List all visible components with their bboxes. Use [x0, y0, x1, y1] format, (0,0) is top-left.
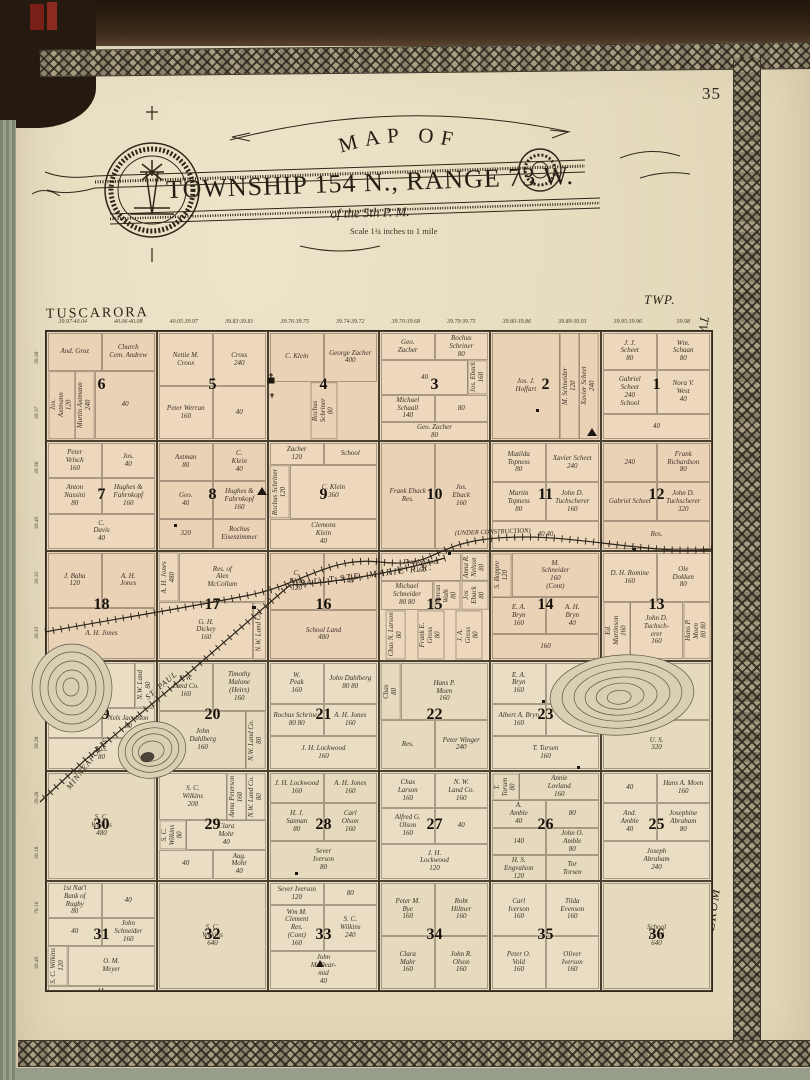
section-tile-20: N.W. Land Co. 160Timothy Malone (Heirs) …: [157, 661, 268, 771]
section-tile-11: Matilda Topness 80Xavier Scheet 240Marti…: [490, 441, 601, 551]
section-tile-1: J. J. Scheet 80Wm. Schaan 80Gabriel Sche…: [601, 331, 712, 441]
parcel-owner-label: S. C. Wilkins 640: [159, 883, 266, 989]
map-scale-note: Scale 1¾ inches to 1 mile: [350, 226, 437, 236]
section-tile-22: Chas 80Hans P. Moen 160Res.Peter Winger …: [379, 661, 490, 771]
survey-acreage-value: 39.79·39.75: [434, 319, 490, 325]
section-tile-8: Axtman 80C. Klein 40Geo. 40Hughes & Fahr…: [157, 441, 268, 551]
parcel-owner-label: Marcus Walk 80: [433, 581, 460, 610]
parcel-owner-label: John McDear- mid 40: [270, 951, 377, 989]
parcel-owner-label: C. Klein 360: [290, 465, 377, 518]
parcel-owner-label: John Dahlberg 80 80: [324, 663, 378, 704]
survey-acreage-value: 39.26: [34, 770, 40, 825]
decorative-border-bottom: [18, 1040, 810, 1067]
parcel-owner-label: Tilda Evenson 160: [546, 883, 600, 936]
parcel-owner-label: N.W. Land 80: [135, 663, 155, 708]
parcel-owner-label: Albert A. Bryn 160: [492, 704, 546, 737]
survey-acreage-value: 39.37: [34, 385, 40, 440]
parcel-owner-label: Clara Mahr 160: [381, 936, 435, 989]
parcel-owner-label: 160: [492, 634, 599, 659]
parcel-owner-label: J. H. Lockwood 120: [381, 844, 488, 879]
survey-acreage-value: 40.05·39.97: [156, 319, 212, 325]
book-cover-accent: [47, 2, 57, 30]
section-tile-25: 40Hans A. Moen 160And. Amble 40Josephine…: [601, 771, 712, 881]
section-tile-33: Sever Iverson 12080Wm M. Clement Res. (C…: [268, 881, 379, 991]
section-tile-36: School Land 64036: [601, 881, 712, 991]
parcel-owner-label: John R. Olson 160: [435, 936, 489, 989]
parcel-owner-label: S. C. Wilkins 200: [159, 773, 227, 820]
parcel-owner-label: John D. Tuchscherer 320: [657, 482, 711, 521]
parcel-owner-label: 40: [213, 386, 267, 439]
parcel-owner-label: S. C. Wilkins 120: [48, 946, 68, 986]
survey-acreage-value: 39.83·39.81: [212, 319, 268, 325]
parcel-owner-label: Ed. Martinson 160: [603, 602, 630, 659]
parcel-owner-label: A. H. Jones 160: [324, 773, 378, 803]
parcel-owner-label: Alfred G. Olson 160: [381, 808, 435, 843]
parcel-owner-label: Peter Winger 240: [435, 720, 489, 769]
twp-label-top: TWP.: [644, 292, 676, 308]
parcel-owner-label: Anna R. Nelson 80: [461, 553, 488, 581]
parcel-owner-label: 40: [95, 371, 155, 439]
parcel-owner-label: Sever Iverson 120: [270, 883, 324, 905]
section-tile-26: T. Torsen 80Annie Lovland 160A. Amble 40…: [490, 771, 601, 881]
parcel-owner-label: Jos. J. Hoffart: [492, 333, 560, 439]
parcel-owner-label: E. A. Bryn 160: [492, 663, 546, 704]
parcel-owner-label: P. H. Romine: [657, 663, 711, 720]
parcel-owner-label: 40: [324, 553, 378, 610]
parcel-owner-label: C. Davis 40: [48, 514, 155, 549]
section-tile-6: And. GrozChurch Cem. AndrewJos. Axtmann …: [46, 331, 157, 441]
page-number: 35: [702, 84, 721, 104]
section-tile-13: D. H. Romine 160Ole Dokken 80Ed. Martins…: [601, 551, 712, 661]
survey-acreage-value: 39.33: [34, 605, 40, 660]
parcel-owner-label: Michael Schaall 140: [381, 395, 435, 422]
parcel-owner-label: Peter Werran 160: [159, 386, 213, 439]
parcel-owner-label: Xavier Scheet 240: [579, 333, 599, 439]
parcel-owner-label: 40: [603, 773, 657, 803]
parcel-owner-label: School Land 480: [270, 610, 377, 659]
survey-acreage-value: 39.97·40.04: [45, 319, 101, 325]
parcel-owner-label: Aug. Mohr 40: [213, 850, 267, 879]
parcel-owner-label: M. Schneider 160 (Cont): [512, 553, 599, 597]
section-tile-18: J. Baba 120A. H. JonesA. H. Jones18: [46, 551, 157, 661]
parcel-owner-label: Anna Peterson 160: [227, 773, 247, 820]
parcel-owner-label: A. H. Jones: [48, 708, 102, 739]
parcel-owner-label: 140: [492, 828, 546, 855]
parcel-owner-label: A. H. Jones 480: [159, 553, 179, 602]
parcel-owner-label: School Land 640: [603, 883, 710, 989]
parcel-owner-label: Peter M. Bye 160: [381, 883, 435, 936]
parcel-owner-label: O. M. Meyer: [68, 946, 155, 986]
survey-acreage-value: 39.95·39.96: [600, 319, 656, 325]
page-stack-edge: [0, 120, 16, 1080]
parcel-owner-label: Martin Topness 80: [492, 482, 546, 521]
parcel-owner-label: 40: [603, 414, 710, 439]
parcel-owner-label: Clara Mohr 40: [186, 820, 266, 849]
parcel-owner-label: Nels Jacobson 80: [102, 708, 156, 739]
parcel-owner-label: Chas 80: [381, 663, 401, 720]
survey-acreage-value: 76.16: [34, 880, 40, 935]
parcel-owner-label: John D. Tuchsch- erer 160: [630, 602, 682, 659]
section-tile-27: Chas Larson 160N. W. Land Co. 160Alfred …: [379, 771, 490, 881]
parcel-owner-label: S. C. Wilkins 480: [48, 773, 155, 879]
section-tile-14: S. Boppre 120M. Schneider 160 (Cont)E. A…: [490, 551, 601, 661]
parcel-owner-label: And. Amble 40: [603, 803, 657, 841]
parcel-owner-label: Sever Iverson 80: [270, 841, 377, 879]
survey-acreage-value: 39.40: [34, 495, 40, 550]
parcel-owner-label: A. H. Jones 160: [324, 704, 378, 737]
section-tile-19: U.S. 80N.W. Land 80A. H. JonesNels Jacob…: [46, 661, 157, 771]
parcel-owner-label: Chas Larson 160: [381, 773, 435, 808]
survey-acreage-row: 39.97·40.0440.06·40.0840.05·39.9739.83·3…: [45, 319, 711, 325]
parcel-owner-label: Res. of Alex McCollum: [179, 553, 266, 602]
section-tile-9: Zacher 120SchoolRochus Schriner 120C. Kl…: [268, 441, 379, 551]
parcel-owner-label: U. S. 320: [603, 720, 710, 769]
parcel-owner-label: H. J. Sannan 80: [270, 803, 324, 841]
section-tile-29: S. C. Wilkins 200Anna Peterson 160N.W. L…: [157, 771, 268, 881]
section-tile-17: A. H. Jones 480Res. of Alex McCollumG. H…: [157, 551, 268, 661]
parcel-owner-label: Frank Eback Res.: [381, 443, 435, 549]
parcel-owner-label: Geo. Zacher 80: [381, 422, 488, 441]
parcel-owner-label: M. A. Moen 160: [603, 663, 657, 720]
parcel-owner-label: Res.: [381, 720, 435, 769]
parcel-owner-label: Wm M. Clement Res. (Cont) 160: [270, 905, 324, 951]
parcel-owner-label: Anton Nassini 80: [48, 478, 102, 513]
section-tile-7: Peter Velsch 160Jos. 40Anton Nassini 80H…: [46, 441, 157, 551]
section-tile-32: S. C. Wilkins 64032: [157, 881, 268, 991]
township-section-grid: And. GrozChurch Cem. AndrewJos. Axtmann …: [45, 330, 713, 992]
parcel-owner-label: Josephine Abraham 80: [657, 803, 711, 841]
parcel-owner-label: 40: [102, 883, 156, 918]
survey-acreage-value: 39.35: [34, 550, 40, 605]
section-tile-30: S. C. Wilkins 48030: [46, 771, 157, 881]
parcel-owner-label: N.W. Land Co. 160: [159, 663, 213, 711]
parcel-owner-label: John Schneider 160: [102, 918, 156, 945]
survey-acreage-value: 39.18: [34, 825, 40, 880]
parcel-owner-label: 240: [603, 443, 657, 482]
section-tile-4: C. KleinGeorge Zacher 400Rochus Schriner…: [268, 331, 379, 441]
parcel-owner-label: Axtman 80: [159, 443, 213, 481]
section-tile-3: Geo. ZacherRochus Schriner 8040Jos. Ebac…: [379, 331, 490, 441]
parcel-owner-label: Peter O. Vold 160: [492, 936, 546, 989]
parcel-owner-label: N.W. Land Co. 80: [246, 711, 266, 769]
parcel-owner-label: Frank E. Gross 80: [417, 610, 444, 659]
survey-acreage-value: 39.80·39.86: [489, 319, 545, 325]
parcel-owner-label: Res.: [546, 704, 600, 737]
parcel-owner-label: Geo. Zacher: [381, 333, 435, 360]
section-tile-23: E. A. Bryn 160Res.Albert A. Bryn 160Res.…: [490, 661, 601, 771]
parcel-owner-label: Jos. 40: [102, 443, 156, 478]
parcel-owner-label: U.S. 80: [48, 663, 135, 708]
survey-acreage-value: 39.89·39.93: [545, 319, 601, 325]
survey-acreage-value: 39.40: [34, 935, 40, 990]
section-tile-31: 1st Nat'l Bank of Rugby 804040John Schne…: [46, 881, 157, 991]
parcel-owner-label: T. Torsen 80: [492, 773, 519, 800]
parcel-owner-label: George Zacher 400: [324, 333, 378, 382]
parcel-owner-label: Hans A. Moen 160: [657, 773, 711, 803]
book-cover-accent: [30, 4, 44, 30]
parcel-owner-label: Zacher 120: [270, 443, 324, 465]
parcel-owner-label: Nettie M. Croox: [159, 333, 213, 386]
section-tile-35: Carl Iverson 160Tilda Evenson 160Peter O…: [490, 881, 601, 991]
parcel-owner-label: Geo. 40: [159, 481, 213, 519]
decorative-border-right: [733, 58, 761, 1042]
parcel-owner-label: Rochus Eisenzimmer: [213, 519, 267, 549]
parcel-owner-label: A. Amble 40: [492, 800, 546, 827]
survey-acreage-value: 39.76·39.75: [267, 319, 323, 325]
parcel-owner-label: Rochus Schriner 80: [310, 382, 337, 439]
parcel-owner-label: N.W. Land Co.: [253, 602, 266, 659]
section-tile-12: 240Frank Richardson 80Gabriel ScheetJohn…: [601, 441, 712, 551]
section-tile-2: Jos. J. HoffartM. Schneider 120Xavier Sc…: [490, 331, 601, 441]
section-tile-10: Frank Eback Res.Jos. Eback 16010: [379, 441, 490, 551]
parcel-owner-label: Jos. Eback 160: [435, 443, 489, 549]
parcel-owner-label: 40: [381, 360, 468, 394]
atlas-photo-scene: 35: [0, 0, 810, 1080]
parcel-owner-label: Gabriel Scheet: [603, 482, 657, 521]
parcel-owner-label: 80: [546, 800, 600, 827]
survey-acreage-value: 39.36: [34, 440, 40, 495]
parcel-owner-label: Jos. Axtmann 120: [48, 371, 75, 439]
parcel-owner-label: S. C. Wilkins 240: [324, 905, 378, 951]
section-tile-15: Frank Gross 160Anna R. Nelson 80Michael …: [379, 551, 490, 661]
parcel-owner-label: J. J. Scheet 80: [603, 333, 657, 370]
section-tile-28: J. H. Lockwood 160A. H. Jones 160H. J. S…: [268, 771, 379, 881]
parcel-owner-label: John D. Tuchscherer 160: [546, 482, 600, 521]
parcel-owner-label: Rochus Schriner 80: [435, 333, 489, 360]
parcel-owner-label: 80: [435, 395, 489, 422]
parcel-owner-label: Res.: [546, 663, 600, 704]
parcel-owner-label: Ole Dokken 80: [657, 553, 711, 602]
book-edge-top: [0, 0, 810, 46]
survey-acreage-value: 39.38: [34, 330, 40, 385]
parcel-owner-label: Clemons Klein 40: [270, 519, 377, 549]
parcel-owner-label: J. Baba 120: [48, 553, 102, 608]
survey-acreage-value: 39.70·39.68: [378, 319, 434, 325]
parcel-owner-label: J. H. Lockwood 160: [270, 736, 377, 769]
parcel-owner-label: Timothy Malone (Heirs) 160: [213, 663, 267, 711]
parcel-owner-label: Oliver Iverson 160: [546, 936, 600, 989]
parcel-owner-label: Rochus Schriner 80 80: [270, 704, 324, 737]
parcel-owner-label: 80: [324, 883, 378, 905]
parcel-owner-label: Hans P. Moen 160: [401, 663, 488, 720]
parcel-owner-label: U.S. 80: [48, 738, 155, 769]
parcel-owner-label: Hughes & Fahrnkopf 160: [213, 481, 267, 519]
parcel-owner-label: G. H. Dickey 160: [159, 602, 253, 659]
parcel-owner-label: John Dahlberg 160: [159, 711, 246, 769]
parcel-owner-label: N.W. Land Co. 80: [246, 773, 266, 820]
parcel-owner-label: E. A. Bryn 160: [492, 597, 546, 634]
parcel-owner-label: Chas N. Larson 80: [386, 610, 406, 659]
parcel-owner-label: J. A. Gross 80: [455, 610, 482, 659]
parcel-owner-label: Joseph Abraham 240: [603, 841, 710, 879]
parcel-owner-label: Matilda Topness 80: [492, 443, 546, 482]
section-tile-21: W. Peak 160John Dahlberg 80 80Rochus Sch…: [268, 661, 379, 771]
parcel-owner-label: Carl Iverson 160: [492, 883, 546, 936]
parcel-owner-label: S. Boppre 120: [492, 553, 512, 597]
survey-acreage-value: 39.28: [34, 715, 40, 770]
parcel-owner-label: M. Schneider 120: [560, 333, 580, 439]
survey-acreage-value: 39.74·39.72: [323, 319, 379, 325]
parcel-owner-label: 40 40: [492, 521, 599, 549]
parcel-owner-label: C. Klein: [270, 333, 324, 382]
parcel-owner-label: M. Goetz 40: [48, 986, 155, 991]
survey-acreage-value: 39.31: [34, 660, 40, 715]
section-tile-24: M. A. Moen 160P. H. RomineU. S. 32024: [601, 661, 712, 771]
parcel-owner-label: Tor Torsen: [546, 855, 600, 881]
parcel-owner-label: Nora V. West 40: [657, 370, 711, 414]
parcel-owner-label: Res.: [603, 521, 710, 549]
section-tile-5: Nettie M. CrooxCross 240Peter Werran 160…: [157, 331, 268, 441]
section-tile-34: Peter M. Bye 160Robt Hiltner 160Clara Ma…: [379, 881, 490, 991]
section-tile-16: C. Klein 12040School Land 48016: [268, 551, 379, 661]
parcel-owner-label: Hans P. Moen 80 80: [683, 602, 710, 659]
parcel-owner-label: A. H. Jones: [102, 553, 156, 608]
parcel-owner-label: C. Klein 120: [270, 553, 324, 610]
parcel-owner-label: Jos Eback 80: [461, 581, 488, 610]
parcel-owner-label: 40: [159, 850, 213, 879]
parcel-owner-label: Jos. Eback 160: [468, 360, 488, 394]
parcel-owner-label: 320: [159, 519, 213, 549]
parcel-owner-label: Cross 240: [213, 333, 267, 386]
parcel-owner-label: Robt Hiltner 160: [435, 883, 489, 936]
survey-acreage-column: 39.3839.3739.3639.4039.3539.3339.3139.28…: [34, 330, 40, 990]
parcel-owner-label: Wm. Schaan 80: [657, 333, 711, 370]
parcel-owner-label: N. W. Land Co. 160: [435, 773, 489, 808]
parcel-owner-label: Carl Olson 160: [324, 803, 378, 841]
parcel-owner-label: Frank Richardson 80: [657, 443, 711, 482]
parcel-owner-label: W. Peak 160: [270, 663, 324, 704]
parcel-owner-label: Michael Schneider 80 80: [381, 581, 433, 610]
parcel-owner-label: Rochus Schriner 120: [270, 465, 290, 518]
parcel-owner-label: A. H. Bryn 40: [546, 597, 600, 634]
parcel-owner-label: School: [324, 443, 378, 465]
parcel-owner-label: Hughes & Fahrnkopf 160: [102, 478, 156, 513]
parcel-owner-label: Church Cem. Andrew: [102, 333, 156, 371]
parcel-owner-label: A. H. Jones: [48, 608, 155, 659]
parcel-owner-label: Frank Gross 160: [381, 553, 461, 581]
parcel-owner-label: Xavier Scheet 240: [546, 443, 600, 482]
parcel-owner-label: D. H. Romine 160: [603, 553, 657, 602]
parcel-owner-label: 40: [435, 808, 489, 843]
parcel-owner-label: Gabriel Scheet 240 School: [603, 370, 657, 414]
parcel-owner-label: T. Torsen 160: [492, 736, 599, 769]
survey-acreage-value: 40.06·40.08: [101, 319, 157, 325]
survey-acreage-value: 39.98: [656, 319, 712, 325]
parcel-owner-label: C. Klein 40: [213, 443, 267, 481]
parcel-owner-label: Martin Axtmann 240: [75, 371, 95, 439]
parcel-owner-label: 40: [48, 918, 102, 945]
parcel-owner-label: S. C. Wilkins 80: [159, 820, 186, 849]
parcel-owner-label: Annie Lovland 160: [519, 773, 599, 800]
parcel-owner-label: And. Groz: [48, 333, 102, 371]
parcel-owner-label: J. H. Lockwood 160: [270, 773, 324, 803]
parcel-owner-label: H. S. Engvalson 120: [492, 855, 546, 881]
parcel-owner-label: Peter Velsch 160: [48, 443, 102, 478]
parcel-owner-label: John O. Amble 80: [546, 828, 600, 855]
parcel-owner-label: 1st Nat'l Bank of Rugby 80: [48, 883, 102, 918]
